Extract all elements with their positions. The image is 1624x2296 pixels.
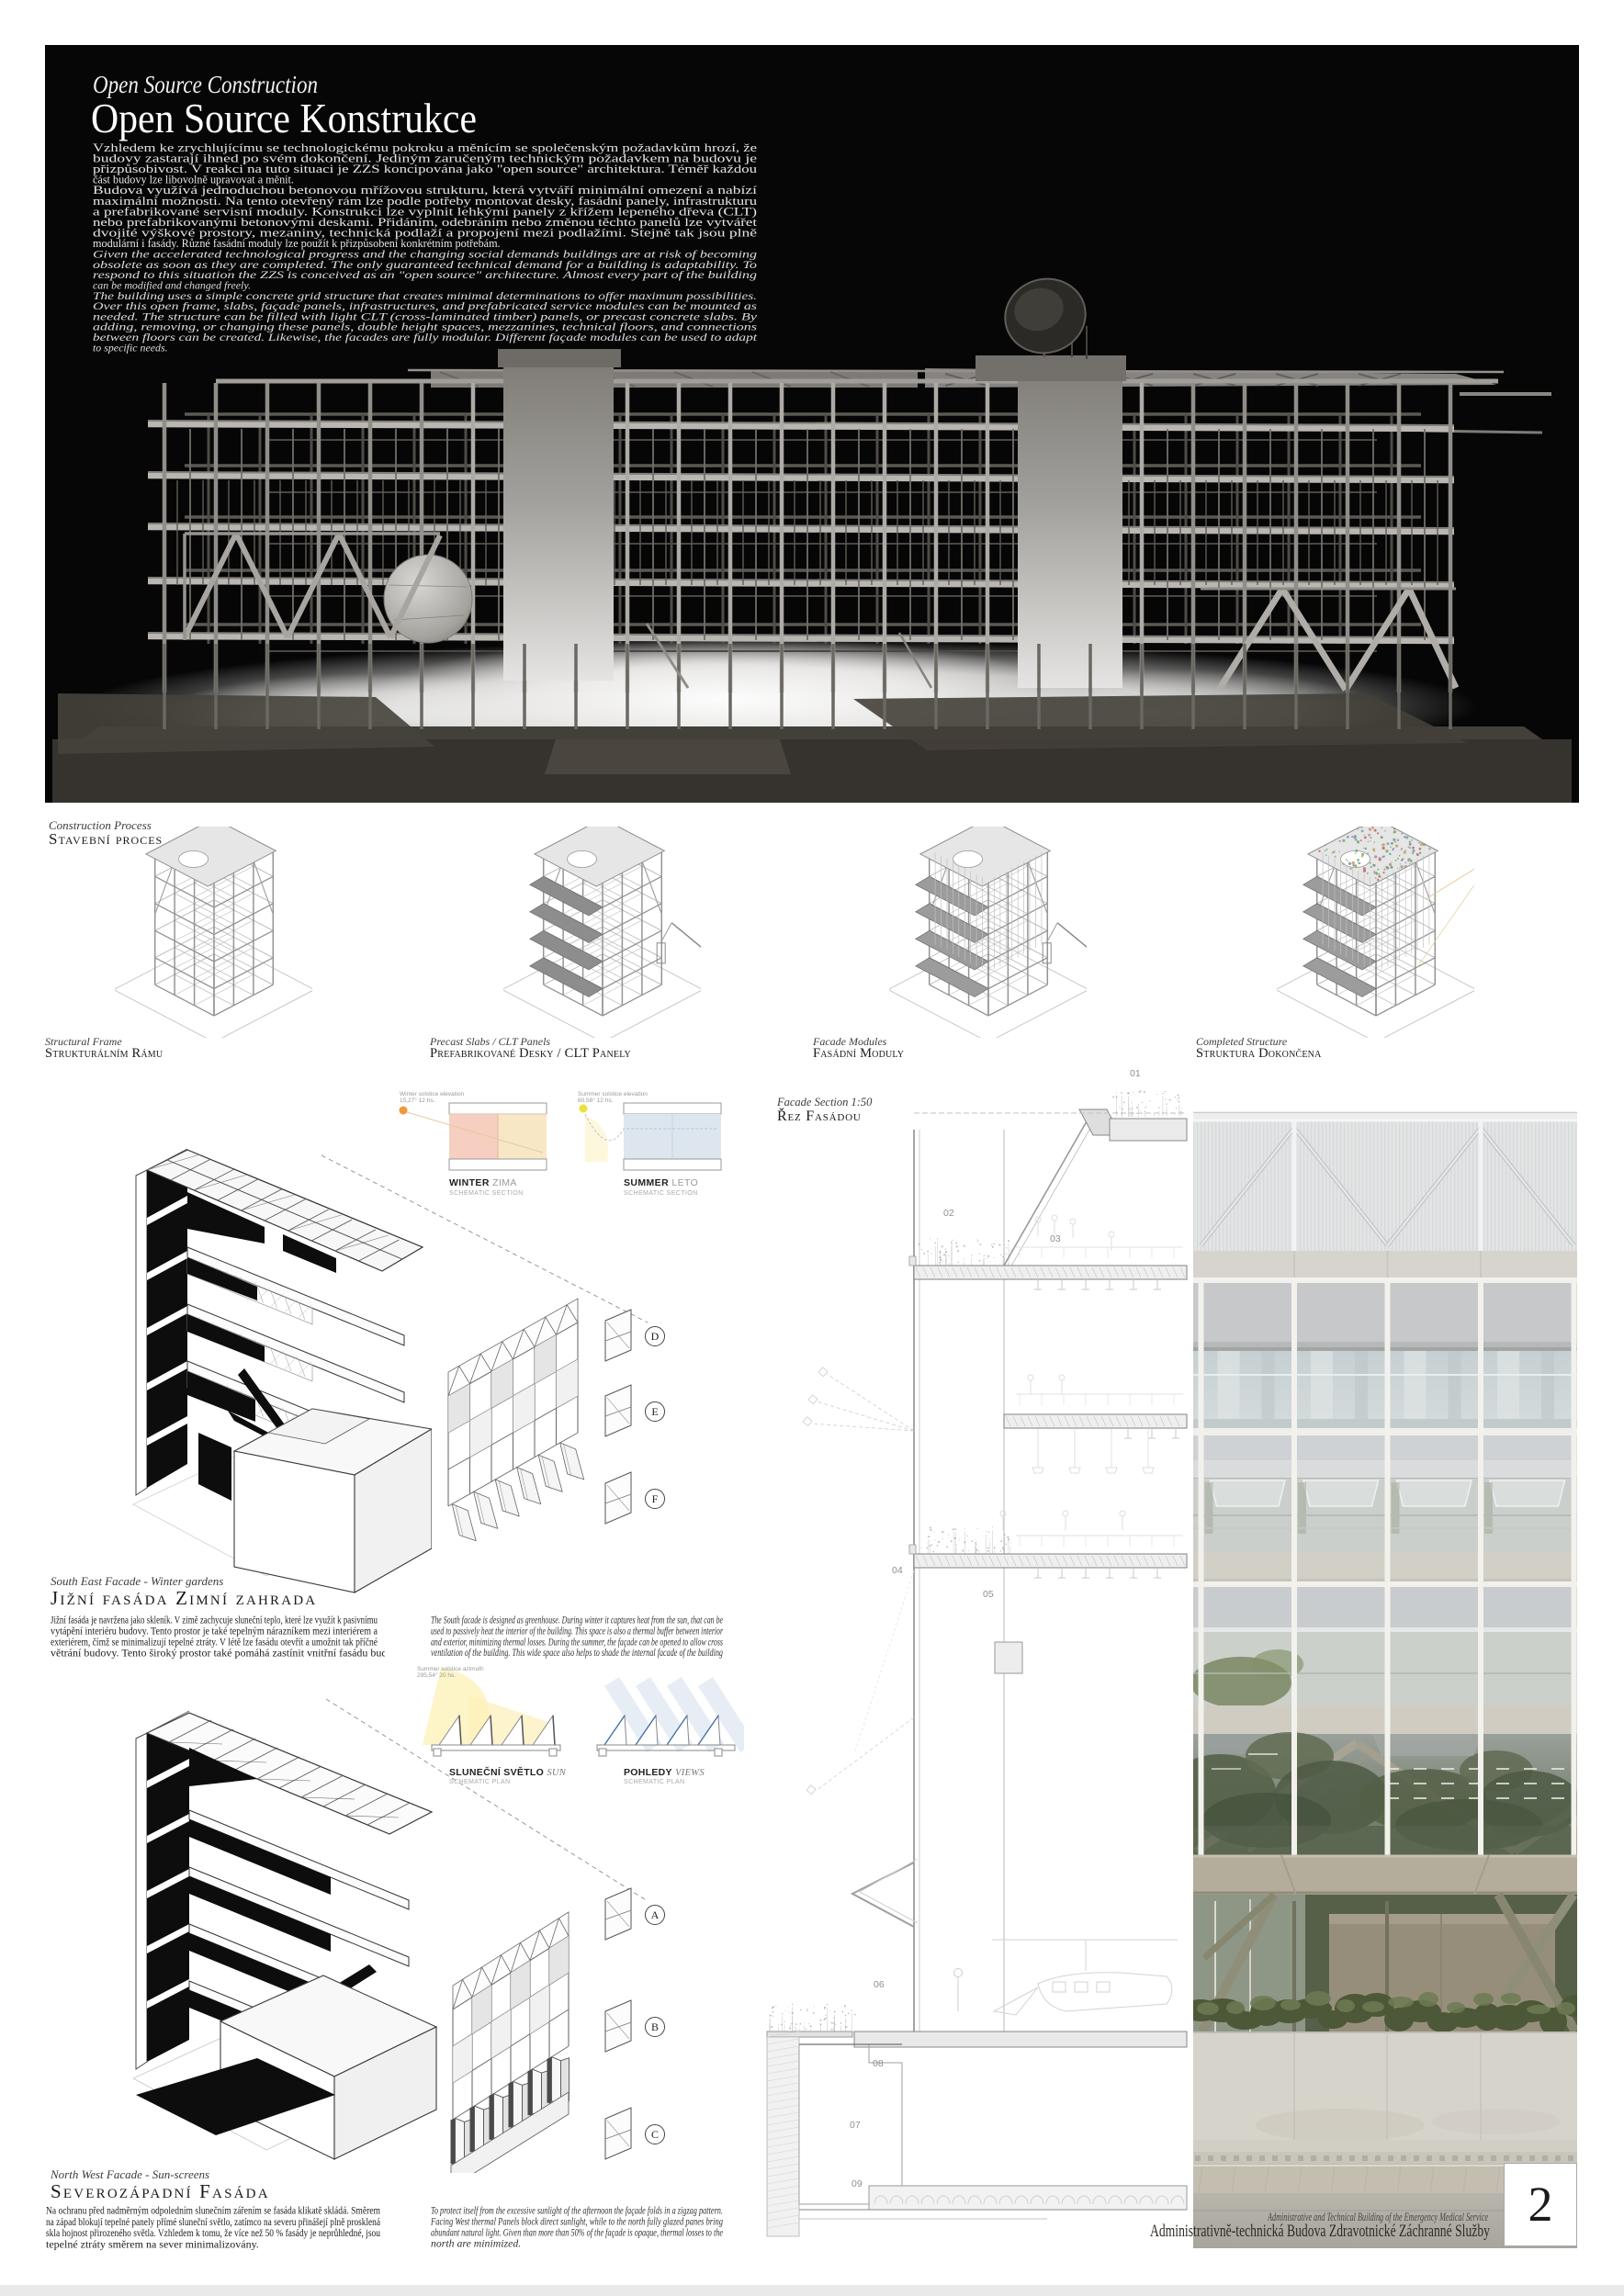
svg-text:Summer solstice elevation: Summer solstice elevation <box>578 1091 648 1097</box>
svg-text:Winter solstice elevation: Winter solstice elevation <box>400 1091 464 1097</box>
svg-text:60,56° 12 hs.: 60,56° 12 hs. <box>578 1097 614 1104</box>
svg-text:tepelné ztráty směrem na sever: tepelné ztráty směrem na sever minimaliz… <box>46 2238 259 2251</box>
svg-text:09: 09 <box>851 2178 863 2189</box>
svg-text:Summer solstice azimuth: Summer solstice azimuth <box>417 1666 484 1672</box>
svg-text:02: 02 <box>943 1208 954 1219</box>
svg-text:05: 05 <box>983 1589 994 1600</box>
svg-text:to specific needs.: to specific needs. <box>93 341 168 354</box>
svg-text:07: 07 <box>850 2120 861 2131</box>
svg-text:295,54° 20 hs.: 295,54° 20 hs. <box>417 1671 456 1679</box>
svg-text:modulární i fasády. Různé fasá: modulární i fasády. Různé fasádní moduly… <box>93 237 501 250</box>
svg-text:north are minimized.: north are minimized. <box>431 2237 521 2250</box>
svg-text:Open Source Konstrukce: Open Source Konstrukce <box>91 96 477 141</box>
svg-text:08: 08 <box>873 2058 884 2069</box>
svg-text:06: 06 <box>874 1979 885 1990</box>
svg-text:Administrativně-technická Budo: Administrativně-technická Budova Zdravot… <box>1150 2223 1491 2241</box>
svg-text:03: 03 <box>1050 1233 1061 1244</box>
svg-text:04: 04 <box>892 1565 903 1576</box>
svg-text:větrání budovy. Tento široký p: větrání budovy. Tento široký prostor tak… <box>51 1646 385 1659</box>
svg-text:15,27° 12 hs.: 15,27° 12 hs. <box>400 1097 435 1104</box>
svg-text:between floors can be created.: between floors can be created. Likewise,… <box>93 331 758 343</box>
svg-text:Open Source Construction: Open Source Construction <box>93 71 318 98</box>
svg-text:01: 01 <box>1130 1068 1141 1079</box>
svg-text:ventilation of the building.: ventilation of the building. This wide s… <box>431 1646 723 1659</box>
